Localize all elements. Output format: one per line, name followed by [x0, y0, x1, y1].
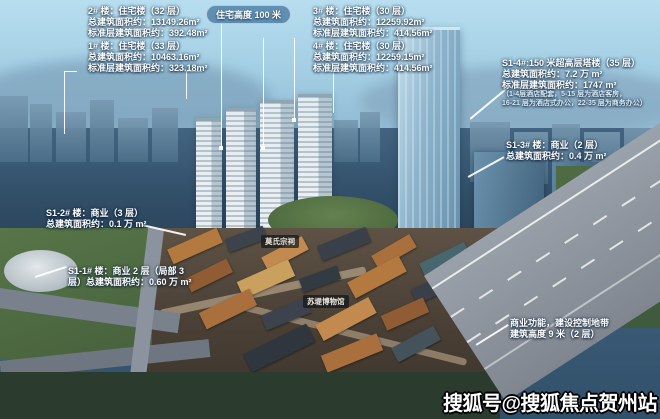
label-line: S1-4#:150 米超高层塔楼（35 层）	[502, 58, 647, 69]
distant-building	[56, 112, 86, 162]
trees-bottom	[0, 372, 500, 419]
leader-marker	[261, 146, 265, 150]
distant-building	[30, 104, 52, 162]
tower-roof	[260, 100, 294, 103]
distant-building	[118, 118, 148, 162]
label-line: S1-1# 楼：商业 2 层（局部 3	[68, 266, 192, 277]
label-fine-print: 16-21 层为酒店式办公，22-35 层为商务办公）	[502, 100, 647, 109]
label-line: 总建筑面积约：13149.26m²	[88, 17, 208, 28]
label-line: 总建筑面积约：12259.15m²	[313, 52, 433, 63]
tower-roof	[196, 118, 222, 121]
bracket-line	[186, 71, 187, 99]
residential-tower-1	[196, 120, 222, 236]
bracket-line	[64, 71, 77, 72]
label-line: 建筑高度 9 米（2 层）	[510, 329, 609, 340]
landmark-tag-museum: 苏堤博物馆	[303, 295, 349, 308]
label-line: 标准层建筑面积约：392.48m²	[88, 28, 208, 39]
label-building-2: 2# 楼：住宅楼（32 层） 总建筑面积约：13149.26m² 标准层建筑面积…	[88, 6, 208, 39]
label-line: S1-3# 楼：商业（2 层）	[506, 140, 607, 151]
bracket-line	[64, 72, 65, 134]
distant-building	[0, 96, 28, 162]
tower-roof	[298, 94, 332, 97]
leader-line	[263, 38, 264, 146]
label-s1-3: S1-3# 楼：商业（2 层） 总建筑面积约：0.4 万 m²	[506, 140, 607, 162]
label-s1-2: S1-2# 楼：商业（3 层） 总建筑面积约：0.1 万 m²	[46, 208, 147, 230]
label-line: S1-2# 楼：商业（3 层）	[46, 208, 147, 219]
label-line: 1# 楼：住宅楼（33 层）	[88, 41, 208, 52]
label-line: 标准层建筑面积约：323.18m²	[88, 63, 208, 74]
distant-building	[334, 120, 358, 162]
label-line: 总建筑面积约：10463.16m²	[88, 52, 208, 63]
label-commercial-zone: 商业功能，建设控制地带 建筑高度 9 米（2 层）	[510, 318, 609, 340]
label-fine-print: （1-4层酒店配套，5-15 层为酒店客房，	[502, 91, 647, 100]
label-building-4: 4# 楼：住宅楼（30 层） 总建筑面积约：12259.15m² 标准层建筑面积…	[313, 41, 433, 74]
label-line: 层）总建筑面积约：0.60 万 m²	[68, 277, 192, 288]
label-line: 总建筑面积约：0.4 万 m²	[506, 151, 607, 162]
bracket-line	[333, 71, 334, 113]
leader-line	[221, 22, 222, 146]
distant-building	[152, 108, 178, 162]
distant-building	[90, 100, 114, 162]
label-s1-4: S1-4#:150 米超高层塔楼（35 层） 总建筑面积约：7.2 万 m² 标…	[502, 58, 647, 108]
residential-tower-2	[226, 110, 256, 238]
round-building	[4, 250, 78, 292]
label-line: 总建筑面积约：12259.92m²	[313, 17, 433, 28]
label-building-3: 3# 楼：住宅楼（30 层） 总建筑面积约：12259.92m² 标准层建筑面积…	[313, 6, 433, 39]
landmark-tag-ancestral-hall: 莫氏宗祠	[261, 235, 299, 248]
label-line: 标准层建筑面积约：414.56m²	[313, 63, 433, 74]
label-line: 3# 楼：住宅楼（30 层）	[313, 6, 433, 17]
height-pill: 住宅高度 100 米	[206, 5, 291, 24]
label-line: 标准层建筑面积约：1747 m²	[502, 80, 647, 91]
label-line: 2# 楼：住宅楼（32 层）	[88, 6, 208, 17]
tower-roof	[226, 108, 256, 111]
leader-line	[294, 38, 295, 120]
distant-building	[360, 112, 380, 162]
label-line: 4# 楼：住宅楼（30 层）	[313, 41, 433, 52]
leader-marker	[219, 146, 223, 150]
watermark-sohu: 搜狐号@搜狐焦点贺州站	[443, 387, 657, 416]
label-s1-1: S1-1# 楼：商业 2 层（局部 3 层）总建筑面积约：0.60 万 m²	[68, 266, 192, 288]
aerial-render-image: 住宅高度 100 米 2# 楼：住宅楼（32 层） 总建筑面积约：13149.2…	[0, 0, 660, 419]
label-line: 标准层建筑面积约：414.56m²	[313, 28, 433, 39]
label-line: 总建筑面积约：0.1 万 m²	[46, 219, 147, 230]
label-line: 总建筑面积约：7.2 万 m²	[502, 69, 647, 80]
leader-marker	[292, 118, 296, 122]
label-line: 商业功能，建设控制地带	[510, 318, 609, 329]
label-building-1: 1# 楼：住宅楼（33 层） 总建筑面积约：10463.16m² 标准层建筑面积…	[88, 41, 208, 74]
